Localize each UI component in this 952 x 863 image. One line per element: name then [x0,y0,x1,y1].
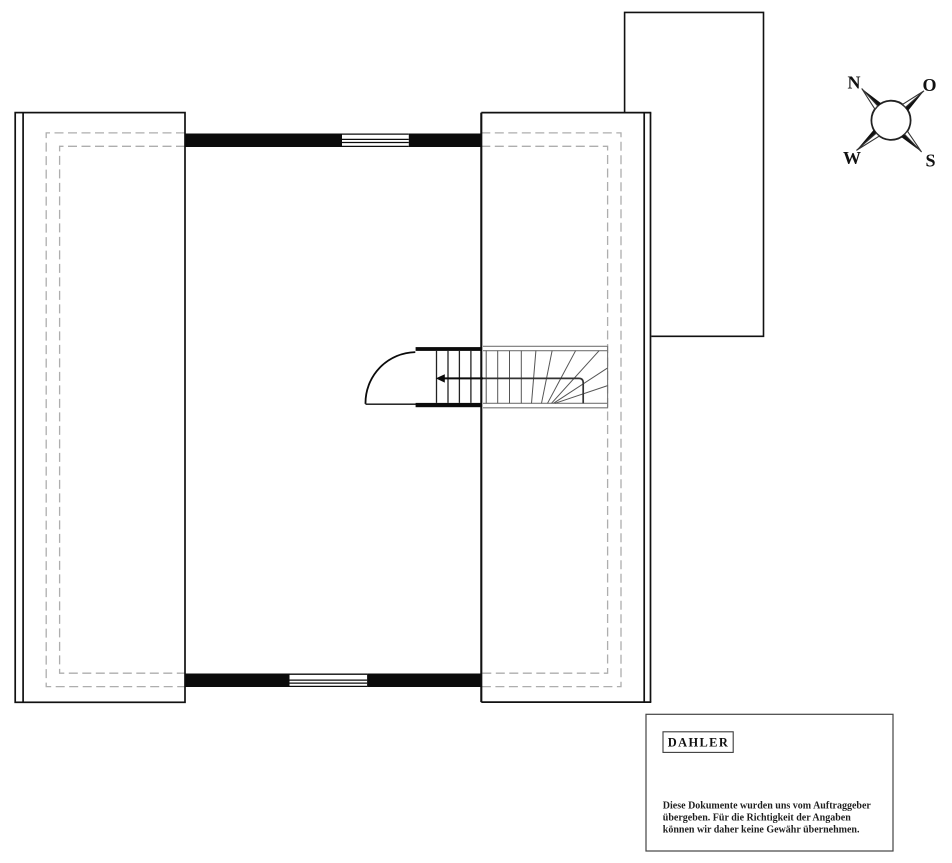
svg-text:Diese Dokumente wurden uns vom: Diese Dokumente wurden uns vom Auftragge… [663,800,872,811]
svg-text:übergeben. Für die Richtigkeit: übergeben. Für die Richtigkeit der Angab… [663,812,851,823]
svg-text:N: N [848,73,861,93]
svg-text:S: S [925,151,935,171]
svg-text:O: O [922,75,936,95]
svg-text:W: W [843,148,861,168]
svg-text:können wir daher keine Gewähr: können wir daher keine Gewähr übernehmen… [663,825,860,836]
svg-text:DAHLER: DAHLER [668,736,729,750]
